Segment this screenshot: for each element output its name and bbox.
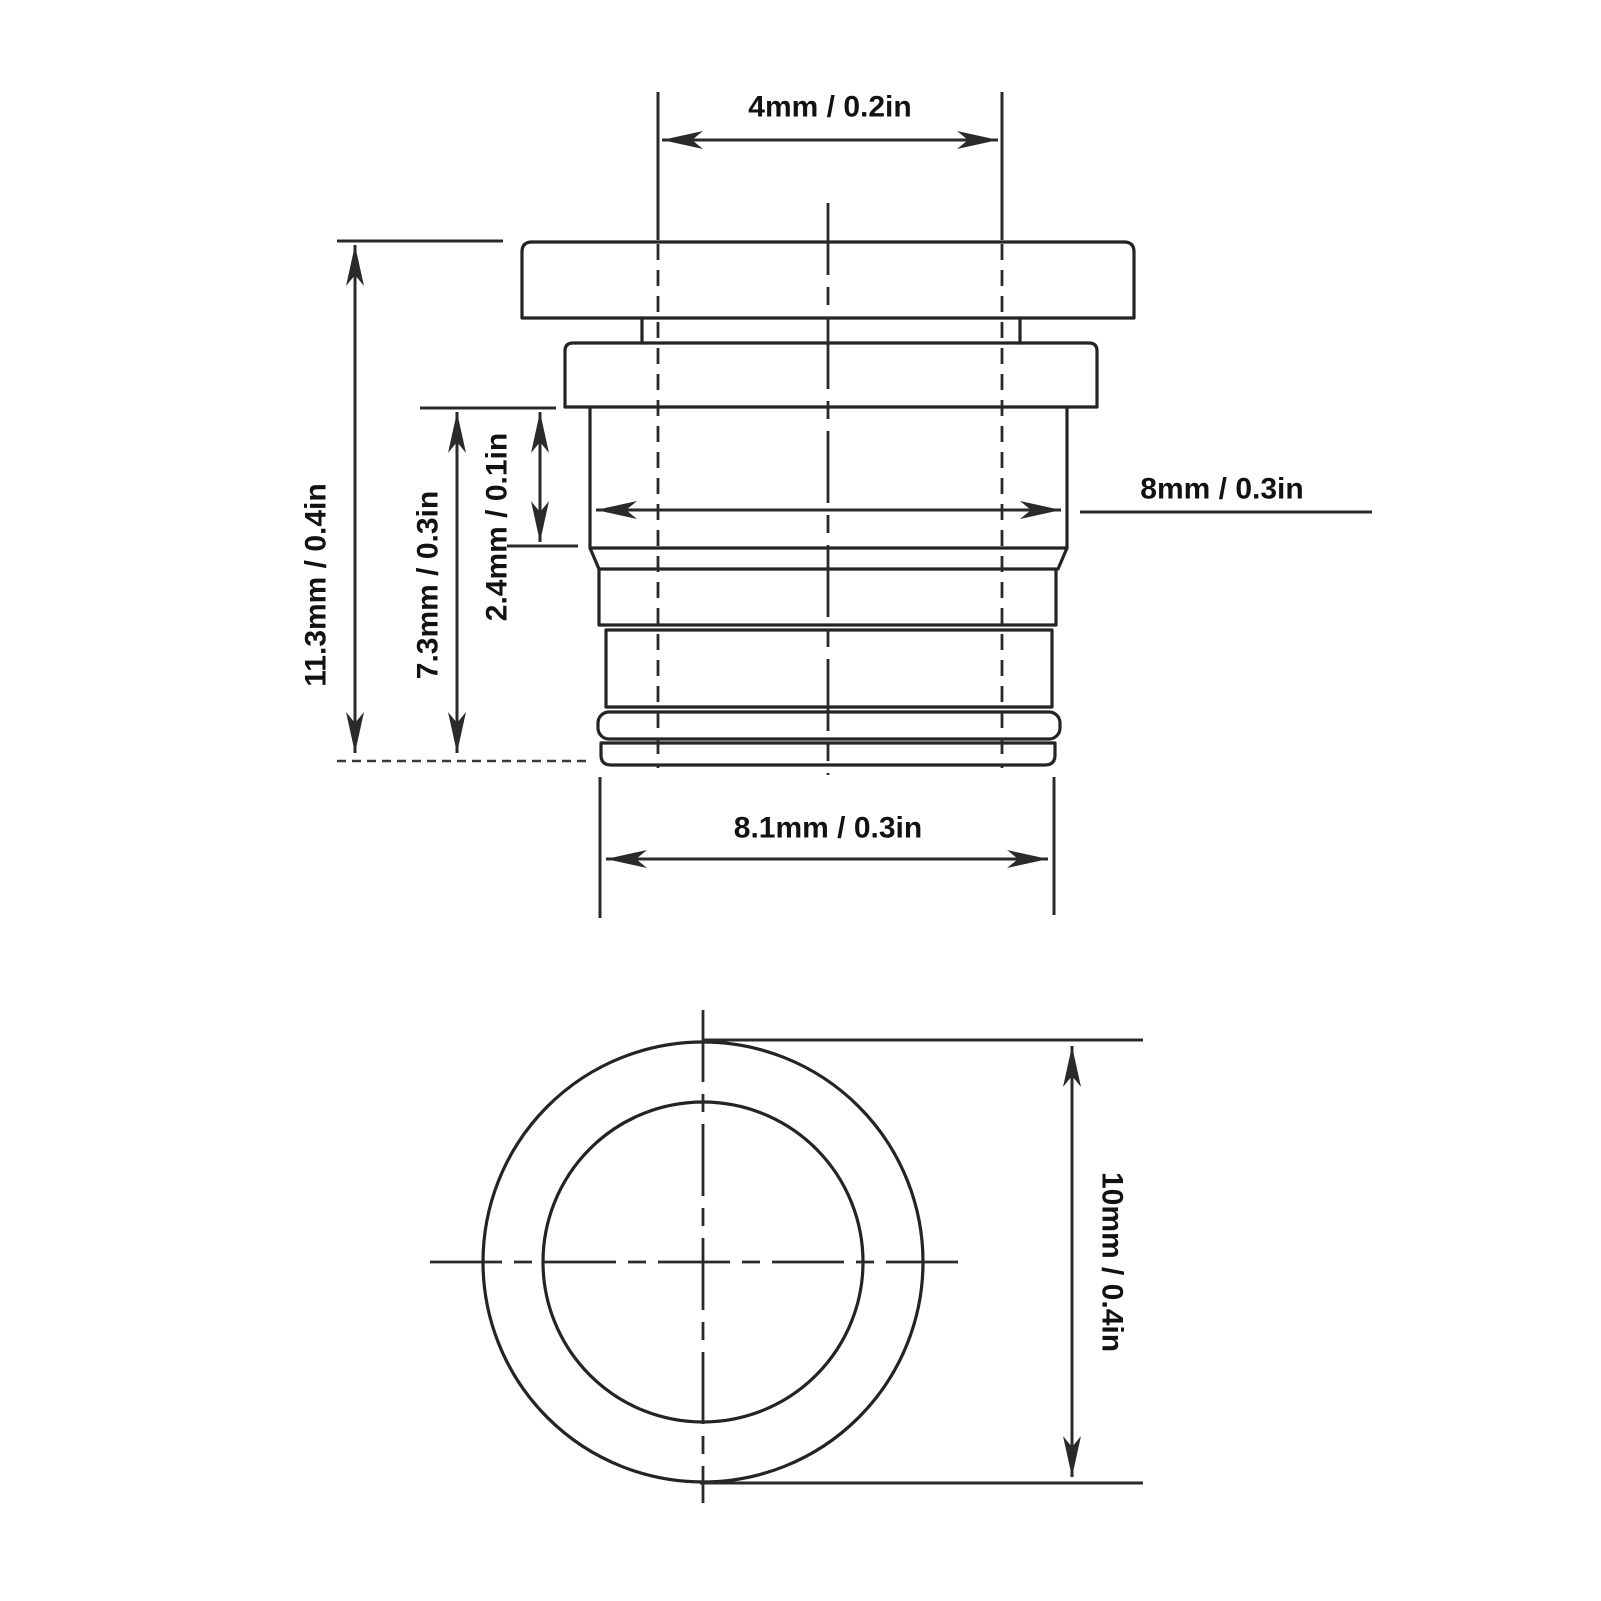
drawing-canvas: 4mm / 0.2in 8mm / 0.3in 11.3mm / 0.4in 7… bbox=[0, 0, 1601, 1601]
dimension-body-width: 8mm / 0.3in bbox=[596, 473, 1372, 513]
chamfer-right bbox=[1058, 548, 1067, 569]
dimension-body-height-label: 7.3mm / 0.3in bbox=[412, 491, 445, 679]
dimension-step-height-label: 2.4mm / 0.1in bbox=[481, 433, 514, 621]
dimension-step-height: 2.4mm / 0.1in bbox=[481, 412, 579, 621]
dimension-top-width-label: 4mm / 0.2in bbox=[748, 91, 911, 124]
dimension-top-width: 4mm / 0.2in bbox=[658, 91, 1002, 241]
dimension-bottom-width-label: 8.1mm / 0.3in bbox=[734, 812, 922, 845]
top-view: 10mm / 0.4in bbox=[430, 1010, 1143, 1503]
dimension-total-height-label: 11.3mm / 0.4in bbox=[300, 483, 333, 686]
dimension-outer-diameter-label: 10mm / 0.4in bbox=[1096, 1172, 1129, 1352]
technical-drawing: 4mm / 0.2in 8mm / 0.3in 11.3mm / 0.4in 7… bbox=[0, 0, 1601, 1601]
dimension-body-width-label: 8mm / 0.3in bbox=[1140, 473, 1303, 506]
flange-outline bbox=[565, 343, 1097, 407]
dimension-total-height: 11.3mm / 0.4in bbox=[300, 241, 504, 753]
side-view: 4mm / 0.2in 8mm / 0.3in 11.3mm / 0.4in 7… bbox=[300, 91, 1373, 919]
dimension-bottom-width: 8.1mm / 0.3in bbox=[600, 777, 1054, 918]
chamfer-left bbox=[590, 548, 599, 569]
